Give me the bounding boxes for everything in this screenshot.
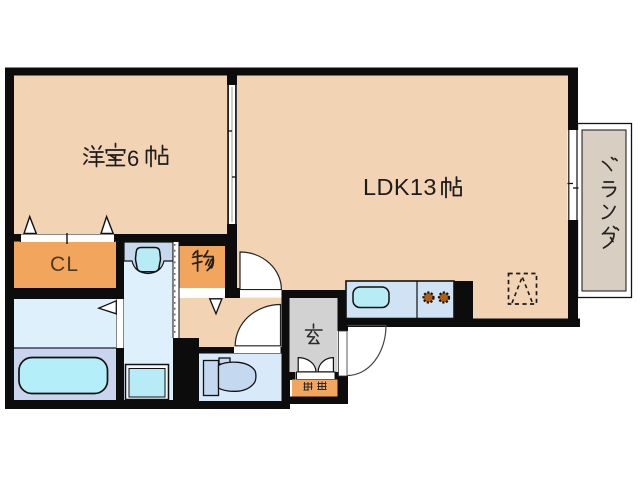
- svg-text:6: 6: [127, 146, 139, 171]
- svg-text:CL: CL: [50, 253, 79, 276]
- svg-text:LDK13: LDK13: [363, 174, 437, 200]
